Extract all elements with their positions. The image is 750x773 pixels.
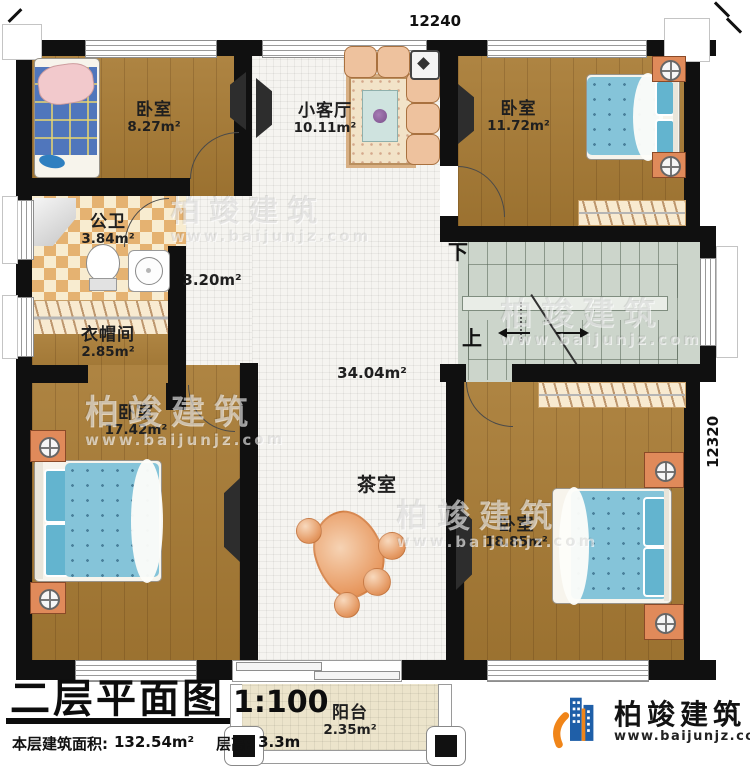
bed-icon [34,460,162,582]
break-mark-icon [8,8,23,23]
window-top-bedroom-tl [85,40,217,58]
wall-stair-bottom-right [512,364,716,382]
break-mark-icon [714,1,730,17]
toilet-icon [86,244,120,292]
pillow-icon [655,80,675,116]
page-title: 二层平面图 [10,666,225,724]
stair-dashed-line [520,302,524,342]
stair-arrow-left [506,332,530,334]
exterior-sill-outline [2,295,18,359]
wall-stair-top [440,226,716,242]
label-living: 小客厅 10.11m² [270,101,380,137]
company-logo: 柏竣建筑 www.baijunjz.com [552,692,750,752]
window-top-bedroom-tr [487,40,647,58]
company-name: 柏竣建筑 [614,700,750,729]
room-name: 卧室 [136,100,172,120]
wall-closet-bottom [16,365,88,383]
wall-living-bedroomtr-upper [440,40,458,166]
tea-stool-icon [363,568,391,596]
room-area: 3.20m² [182,272,241,290]
label-bedroom-tl: 卧室 8.27m² [104,100,204,136]
window-bottom-bedroom-br [487,660,649,682]
label-stairs-down: 下 [448,236,468,265]
exterior-sill-outline [2,24,42,60]
label-hall-west: 3.20m² [162,272,262,290]
floor-area-value: 132.54m² [114,733,194,754]
room-name: 公卫 [90,212,126,232]
room-name: 卧室 [118,403,154,423]
room-area: 2.85m² [81,345,134,361]
label-bedroom-tr: 卧室 11.72m² [466,99,571,135]
exterior-sill-outline [2,196,18,264]
pillow-icon [655,119,675,155]
room-area: 34.04m² [337,365,407,383]
room-name: 衣帽间 [81,325,135,345]
floor-height-value: 3.3m [258,733,300,754]
bed-icon [552,488,672,604]
wall-right-lower [684,382,700,680]
exterior-sill-outline [716,246,738,358]
balcony-post-icon [426,726,466,766]
room-area: 18.85m² [485,535,548,551]
sofa-icon [406,103,440,134]
end-table-icon [410,50,440,80]
wall-living-bedroomtr-lower [440,216,458,226]
dimension-top: 12240 [398,12,472,30]
tea-stool-icon [296,518,322,544]
room-name: 茶室 [357,474,397,496]
sofa-icon [344,46,377,78]
wardrobe-rack-icon [578,200,686,226]
sofa-icon [406,134,440,165]
window-left-bath [16,200,34,260]
room-area: 2.35m² [323,723,376,739]
label-stairs-up: 上 [462,322,482,351]
wall-bath-hall [168,246,186,385]
stair-handrail [462,296,668,311]
room-area: 3.84m² [81,232,134,248]
tea-stool-icon [334,592,360,618]
wall-right-upper [684,40,700,242]
room-area: 17.42m² [105,423,168,439]
label-bath: 公卫 3.84m² [58,212,158,248]
room-area: 11.72m² [487,119,550,135]
title-block: 二层平面图 1:100 [10,666,329,724]
bed-icon [34,58,100,178]
wardrobe-rack-icon [538,382,686,408]
wall-bedroomtl-bottom [16,178,190,196]
room-name: 阳台 [332,703,368,723]
break-mark-icon [726,17,742,33]
label-bedroom-bl: 卧室 17.42m² [86,403,186,439]
nightstand-icon [30,430,66,462]
nightstand-icon [30,582,66,614]
label-tea-room: 茶室 [327,474,427,496]
tea-stool-icon [378,532,406,560]
label-hall: 34.04m² [320,365,424,383]
stair-arrow-right [556,332,580,334]
sheet-fold-icon [38,153,66,170]
label-closet: 衣帽间 2.85m² [58,325,158,361]
floor-height-label: 层高: [216,733,252,754]
room-name: 小客厅 [298,101,352,121]
nightstand-icon [652,152,686,178]
bed-icon [586,74,680,160]
company-website: www.baijunjz.com [614,729,750,744]
nightstand-icon [652,56,686,82]
floor-info: 本层建筑面积: 132.54m² 层高: 3.3m [12,733,300,754]
title-underline [6,718,230,724]
dimension-right: 12320 [704,396,726,488]
window-left-closet [16,297,34,357]
stair-arrowhead-left-icon [498,328,507,338]
stair-arrowhead-right-icon [580,328,589,338]
blanket-icon [131,459,163,583]
floor-plan-canvas: 卧室 8.27m² 小客厅 10.11m² 卧室 11.72m² 公卫 3.84… [0,0,750,773]
room-name: 卧室 [501,99,537,119]
room-area: 10.11m² [294,121,357,137]
nightstand-icon [644,452,684,488]
room-area: 8.27m² [127,120,180,136]
company-logo-icon [552,692,606,752]
room-name: 卧室 [499,515,535,535]
floor-area-label: 本层建筑面积: [12,733,108,754]
plan-scale: 1:100 [233,685,329,720]
label-bedroom-br: 卧室 18.85m² [464,515,569,551]
wall-bedroombl-right [240,363,258,660]
sofa-icon [377,46,410,78]
nightstand-icon [644,604,684,640]
